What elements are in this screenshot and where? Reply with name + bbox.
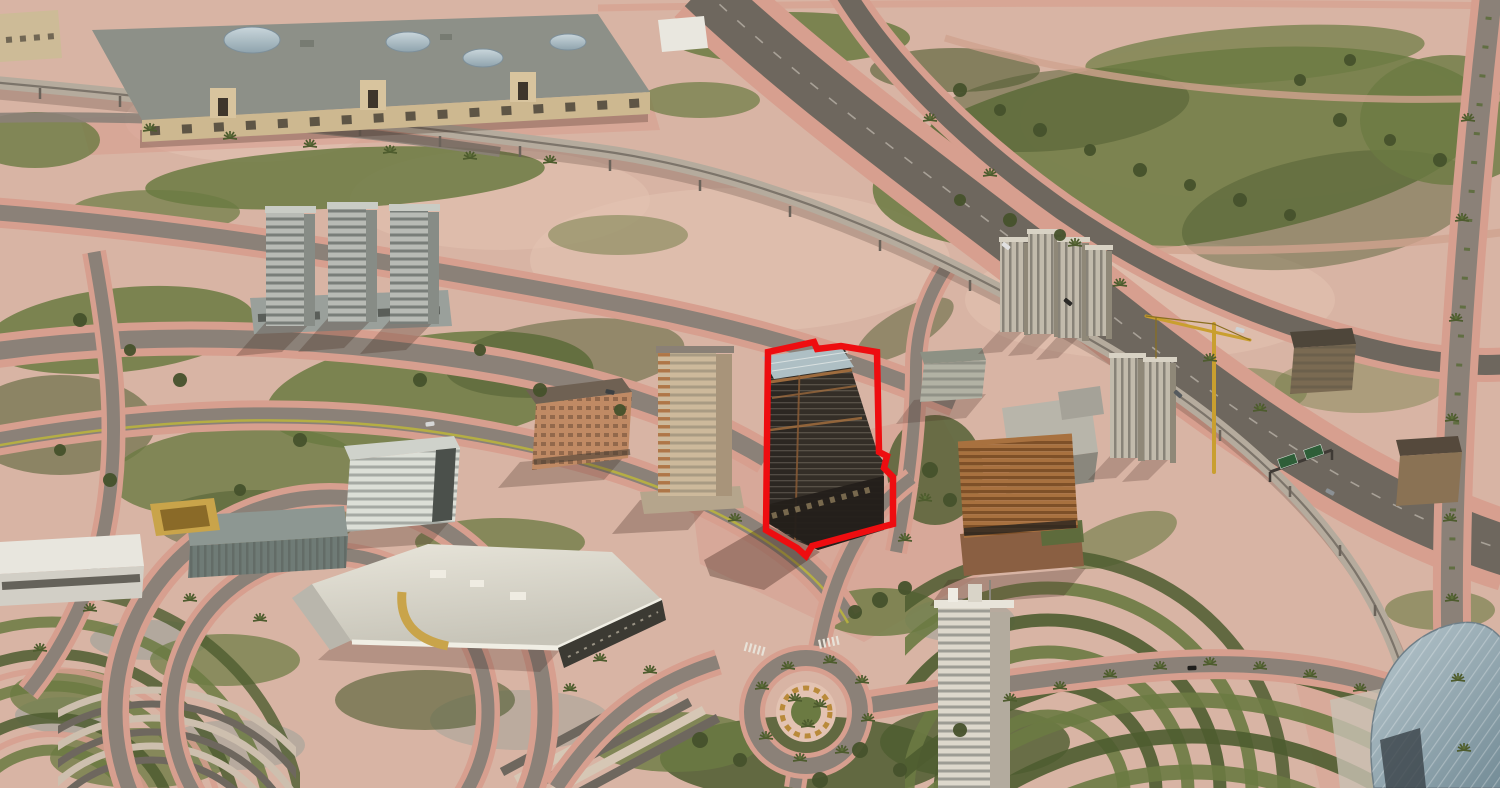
white-canopy: [658, 16, 708, 52]
roundabout-island: [776, 682, 836, 742]
aerial-render-frame: [0, 0, 1500, 788]
corner-building-topleft: [0, 10, 62, 62]
balcony-strip: [658, 350, 670, 496]
aerial-render: [0, 0, 1500, 788]
tower-trio: [236, 202, 452, 356]
